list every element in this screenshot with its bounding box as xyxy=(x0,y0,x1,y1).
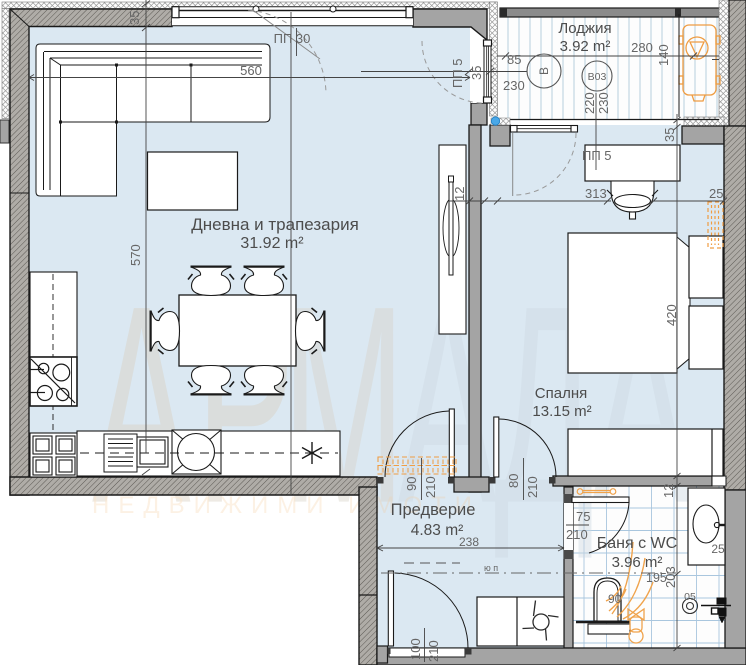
svg-text:230: 230 xyxy=(503,78,525,93)
svg-text:210: 210 xyxy=(423,476,438,498)
svg-text:90: 90 xyxy=(404,477,419,491)
svg-text:570: 570 xyxy=(128,244,143,266)
svg-text:3.92 m²: 3.92 m² xyxy=(560,38,611,55)
svg-text:12: 12 xyxy=(661,484,676,498)
svg-text:25: 25 xyxy=(711,542,725,556)
svg-text:Баня с WC: Баня с WC xyxy=(597,535,677,552)
svg-text:31.92 m²: 31.92 m² xyxy=(240,235,304,252)
svg-text:ПП 5: ПП 5 xyxy=(582,148,612,163)
svg-text:Спалня: Спалня xyxy=(535,385,587,402)
svg-text:560: 560 xyxy=(240,63,262,78)
svg-text:220: 220 xyxy=(582,92,597,114)
svg-text:35: 35 xyxy=(127,11,142,25)
svg-text:75: 75 xyxy=(576,509,590,524)
svg-text:ПП 5: ПП 5 xyxy=(450,58,465,88)
svg-text:210: 210 xyxy=(426,640,441,662)
svg-text:210: 210 xyxy=(525,476,540,498)
svg-text:100: 100 xyxy=(408,638,423,660)
svg-text:05: 05 xyxy=(684,591,696,603)
svg-text:3.96 m²: 3.96 m² xyxy=(612,554,663,571)
svg-text:238: 238 xyxy=(459,535,479,549)
svg-text:Дневна и трапезария: Дневна и трапезария xyxy=(191,215,359,234)
svg-text:4.83 m²: 4.83 m² xyxy=(411,522,464,539)
svg-text:420: 420 xyxy=(664,304,679,326)
svg-text:35: 35 xyxy=(469,66,484,80)
svg-text:13.15 m²: 13.15 m² xyxy=(532,403,591,420)
svg-text:В: В xyxy=(537,67,551,75)
svg-text:210: 210 xyxy=(566,527,588,542)
svg-text:ПП 30: ПП 30 xyxy=(274,31,311,46)
svg-text:280: 280 xyxy=(631,40,653,55)
svg-text:85: 85 xyxy=(507,52,521,67)
svg-text:ю п: ю п xyxy=(484,563,498,573)
svg-text:35: 35 xyxy=(662,128,677,142)
svg-text:Лоджия: Лоджия xyxy=(558,20,611,37)
svg-text:230: 230 xyxy=(596,92,611,114)
svg-text:203: 203 xyxy=(663,566,678,588)
svg-text:12: 12 xyxy=(452,187,467,201)
svg-text:80: 80 xyxy=(506,474,521,488)
svg-text:313: 313 xyxy=(585,186,607,201)
svg-text:25: 25 xyxy=(709,186,723,201)
svg-text:140: 140 xyxy=(656,44,671,66)
svg-text:90: 90 xyxy=(608,592,622,606)
svg-text:Предверие: Предверие xyxy=(391,501,476,519)
svg-text:В03: В03 xyxy=(588,71,607,83)
